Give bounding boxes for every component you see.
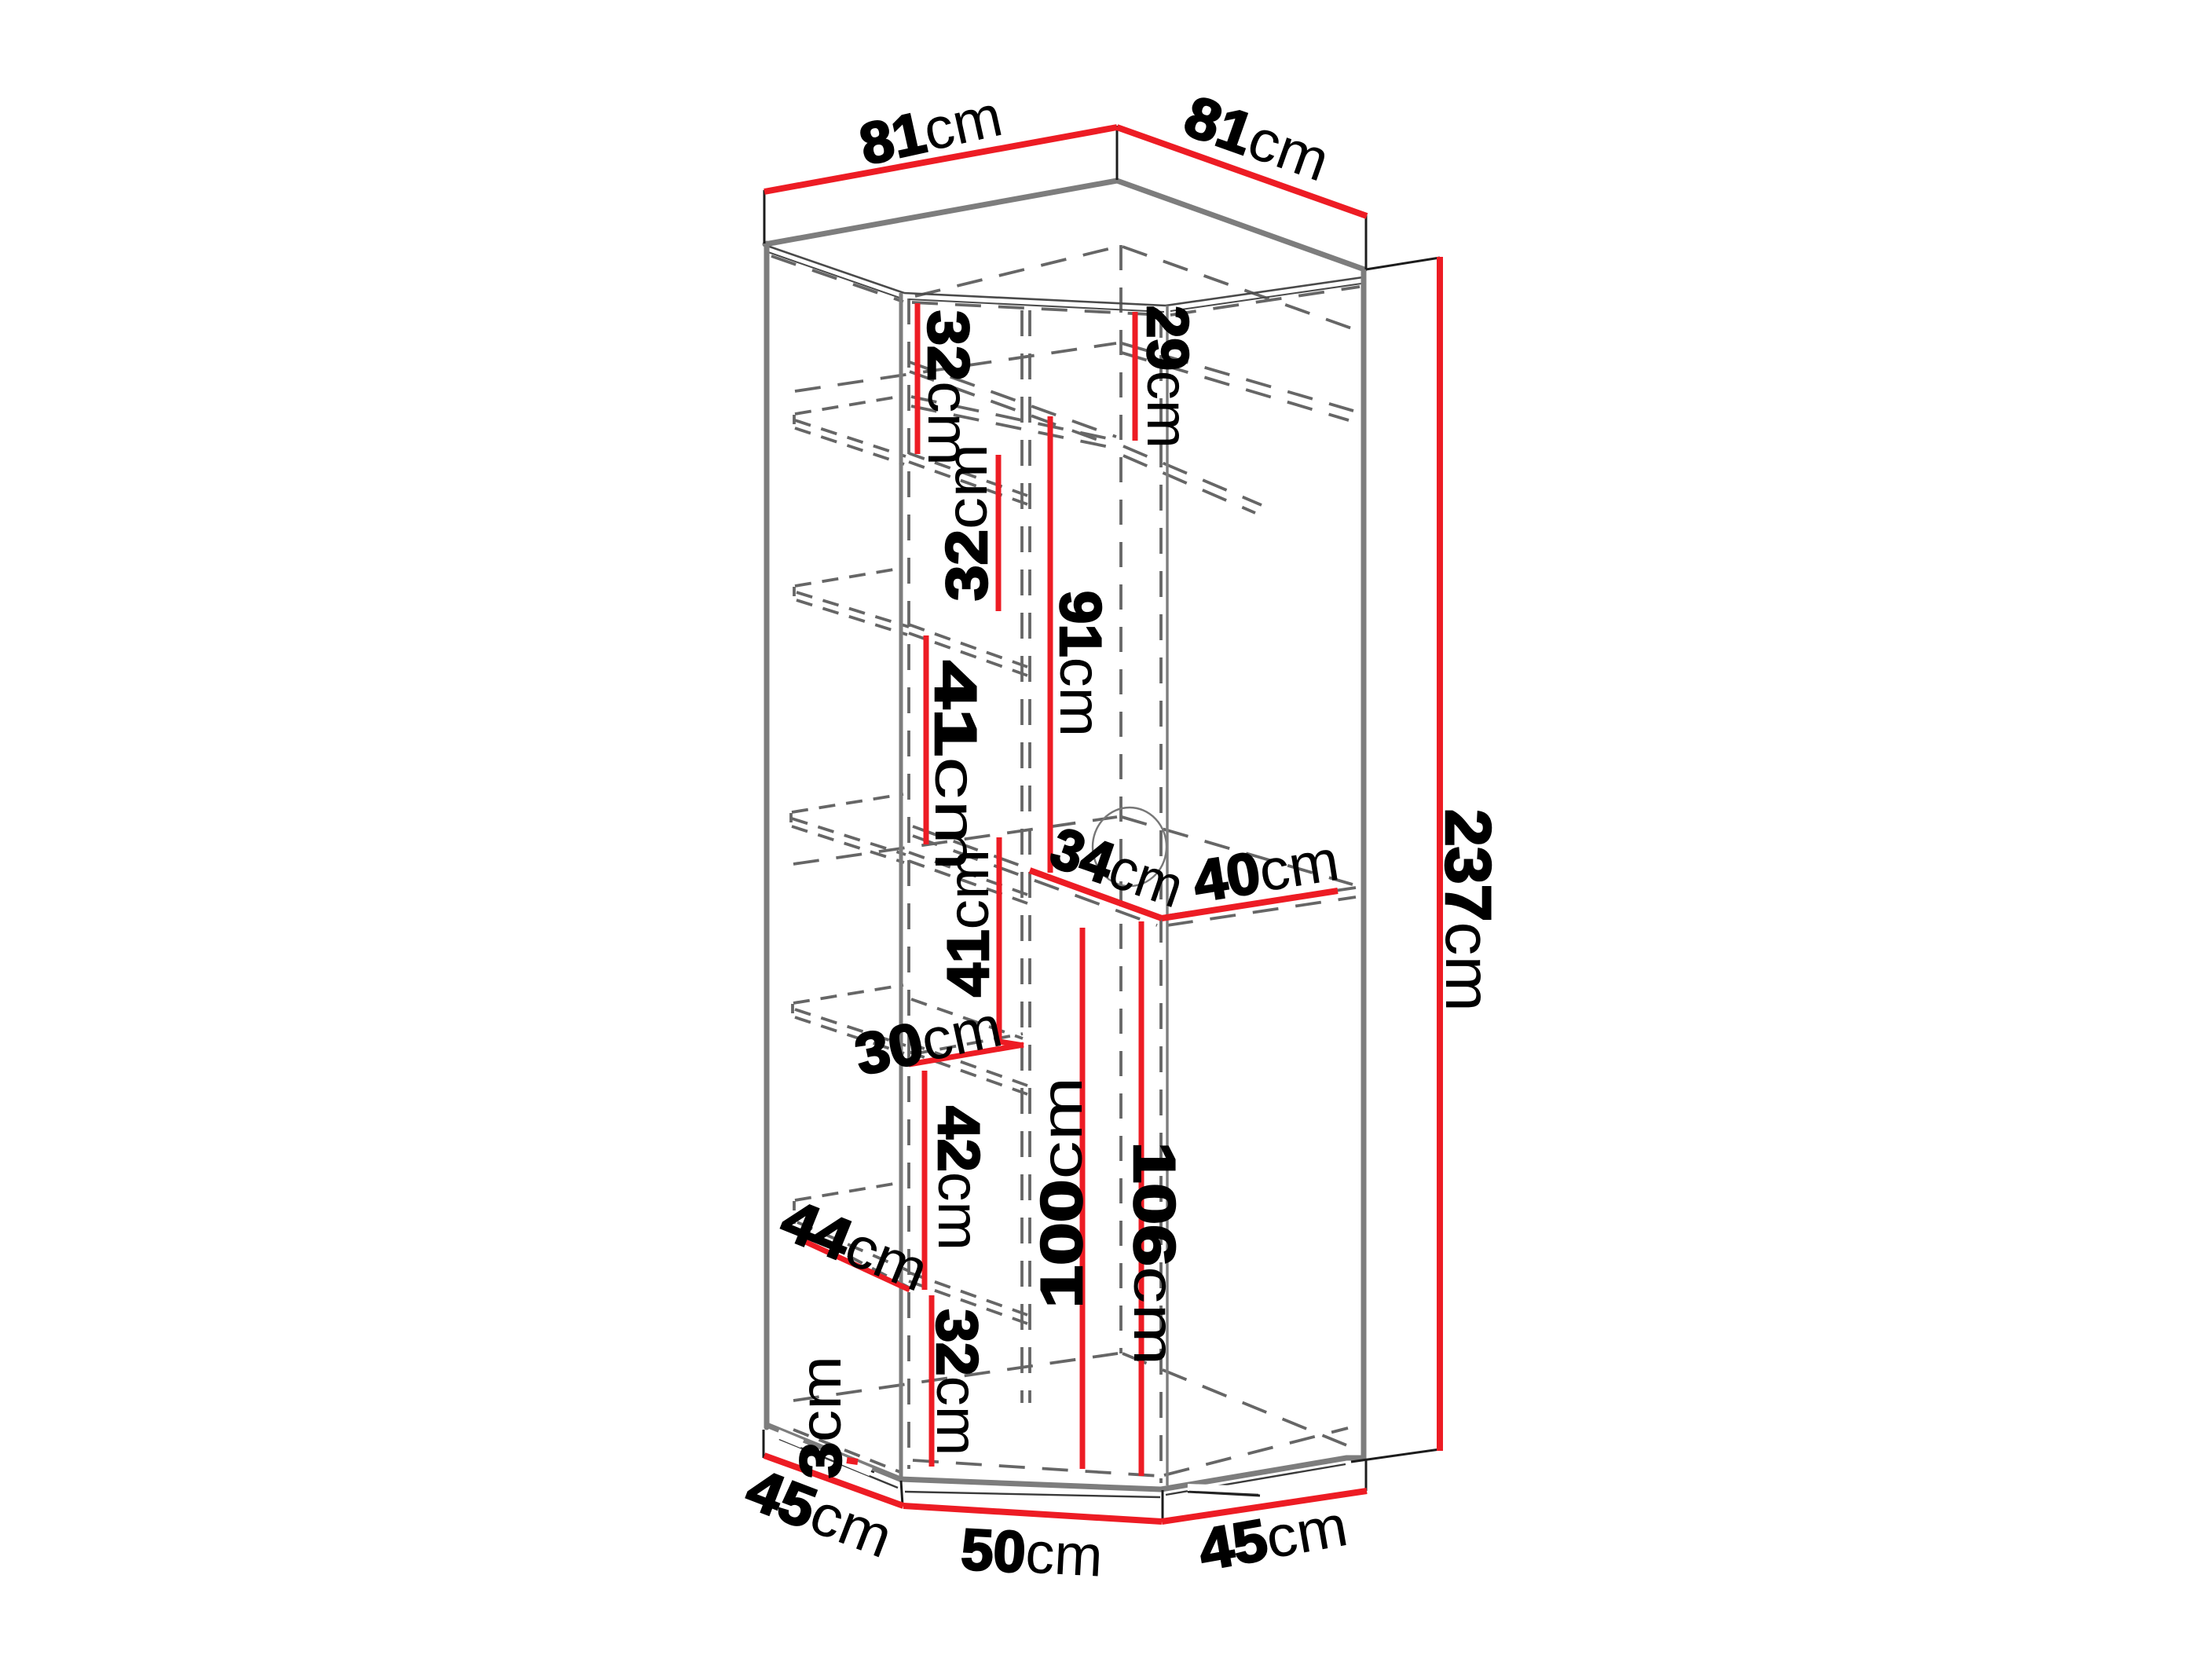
svg-text:32cm: 32cm	[916, 310, 981, 466]
svg-text:29cm: 29cm	[1135, 306, 1200, 449]
svg-text:106cm: 106cm	[1122, 1142, 1187, 1366]
svg-text:42cm: 42cm	[926, 1106, 991, 1251]
svg-text:32cm: 32cm	[934, 444, 999, 601]
svg-text:50cm: 50cm	[960, 1516, 1104, 1588]
svg-text:3cm: 3cm	[788, 1356, 853, 1478]
svg-text:32cm: 32cm	[925, 1309, 990, 1456]
svg-text:91cm: 91cm	[1048, 591, 1113, 737]
svg-text:41cm: 41cm	[923, 661, 988, 871]
svg-text:100cm: 100cm	[1029, 1077, 1094, 1309]
svg-text:41cm: 41cm	[936, 849, 1001, 997]
svg-text:237cm: 237cm	[1432, 809, 1503, 1012]
